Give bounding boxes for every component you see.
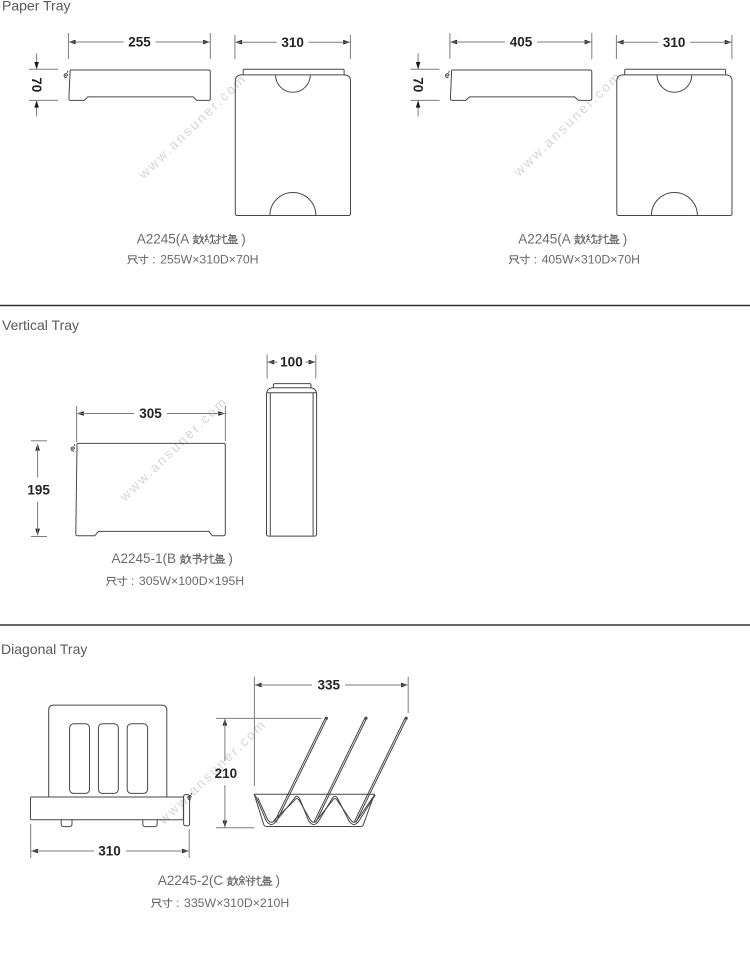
- svg-text:www.ansuner.com: www.ansuner.com: [155, 716, 270, 828]
- svg-text:305: 305: [139, 406, 162, 421]
- svg-text:A2245(A: A2245(A: [137, 231, 190, 246]
- svg-text:Diagonal Tray: Diagonal Tray: [1, 641, 87, 657]
- svg-text:255W×310D×70H: 255W×310D×70H: [160, 252, 258, 266]
- svg-text:310: 310: [281, 35, 304, 50]
- svg-text:): ): [623, 231, 628, 246]
- svg-text::: :: [131, 574, 134, 588]
- svg-text:): ): [241, 231, 246, 246]
- svg-text:www.ansuner.com: www.ansuner.com: [116, 393, 231, 505]
- svg-text:335W×310D×210H: 335W×310D×210H: [184, 896, 289, 910]
- svg-text:335: 335: [318, 678, 341, 693]
- svg-text:70: 70: [29, 77, 44, 92]
- svg-text:Paper Tray: Paper Tray: [2, 0, 70, 14]
- svg-text:210: 210: [215, 766, 238, 781]
- svg-text:): ): [276, 873, 281, 888]
- svg-text:Vertical Tray: Vertical Tray: [2, 317, 79, 333]
- svg-text::: :: [152, 252, 155, 266]
- svg-text:www.ansuner.com: www.ansuner.com: [510, 68, 625, 180]
- svg-text:100: 100: [280, 355, 303, 370]
- svg-text:195: 195: [27, 482, 50, 497]
- svg-text:A2245-2(C: A2245-2(C: [158, 873, 224, 888]
- svg-text:A2245(A: A2245(A: [518, 231, 571, 246]
- svg-text:255: 255: [128, 35, 151, 50]
- svg-text:www.ansuner.com: www.ansuner.com: [135, 71, 250, 183]
- svg-text::: :: [176, 896, 179, 910]
- svg-text:305W×100D×195H: 305W×100D×195H: [139, 574, 244, 588]
- svg-text:70: 70: [410, 77, 425, 92]
- svg-text:310: 310: [98, 844, 121, 859]
- svg-text:310: 310: [663, 35, 686, 50]
- svg-text:405: 405: [510, 35, 533, 50]
- svg-text:405W×310D×70H: 405W×310D×70H: [542, 252, 640, 266]
- svg-text::: :: [534, 252, 537, 266]
- svg-text:A2245-1(B: A2245-1(B: [112, 551, 177, 566]
- svg-text:): ): [228, 551, 233, 566]
